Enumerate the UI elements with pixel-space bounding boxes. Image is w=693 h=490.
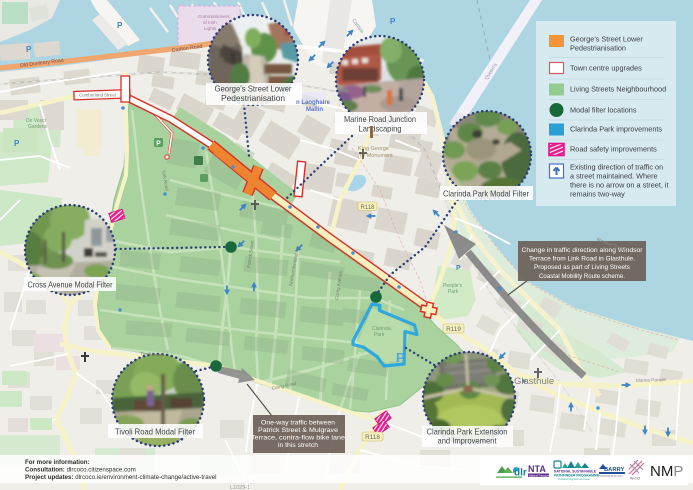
svg-text:Clarinda Park Extension: Clarinda Park Extension	[427, 428, 508, 437]
svg-text:Pedestrianisation: Pedestrianisation	[221, 94, 285, 103]
svg-text:P: P	[26, 45, 32, 54]
svg-text:there is no arrow on a street,: there is no arrow on a street, it	[570, 181, 669, 190]
svg-text:Modal filter locations: Modal filter locations	[570, 106, 637, 115]
svg-text:Landscaping: Landscaping	[359, 125, 402, 134]
svg-text:NTA: NTA	[528, 464, 546, 474]
svg-text:Project updates: dlrcoco.ie/en: Project updates: dlrcoco.ie/environment-…	[25, 474, 217, 481]
svg-text:Commissioners: Commissioners	[198, 14, 230, 19]
svg-text:Coastal Mobility Route scheme.: Coastal Mobility Route scheme.	[539, 273, 625, 280]
svg-text:P: P	[456, 265, 461, 272]
svg-text:Cross Avenue Modal Filter: Cross Avenue Modal Filter	[28, 281, 113, 290]
svg-text:Glasthule: Glasthule	[514, 376, 554, 387]
svg-text:a street maintained. Where: a street maintained. Where	[570, 172, 658, 181]
svg-text:P: P	[396, 350, 405, 365]
svg-text:Lights: Lights	[204, 26, 217, 31]
svg-text:NMP: NMP	[650, 463, 683, 480]
svg-text:remains two-way: remains two-way	[570, 190, 625, 199]
svg-text:Living Streets Neighbourhood: Living Streets Neighbourhood	[570, 85, 666, 94]
svg-text:National Transport: National Transport	[529, 474, 550, 477]
svg-text:Clarinda Park Modal Filter: Clarinda Park Modal Filter	[443, 190, 529, 199]
svg-text:in this stretch: in this stretch	[278, 442, 318, 449]
svg-text:P: P	[14, 139, 20, 148]
svg-text:George's Street Lower: George's Street Lower	[570, 35, 643, 44]
svg-text:R118: R118	[365, 434, 380, 441]
svg-text:Cumberland Street: Cumberland Street	[79, 93, 117, 98]
svg-text:Pedestrianisation: Pedestrianisation	[570, 44, 626, 53]
svg-text:Clarinda Park improvements: Clarinda Park improvements	[570, 125, 662, 134]
svg-text:Proposed as part of Living Str: Proposed as part of Living Streets	[534, 264, 631, 271]
svg-text:Park: Park	[374, 332, 385, 338]
svg-text:Patrick Street & Mulgrave: Patrick Street & Mulgrave	[258, 427, 338, 434]
svg-text:W-CO: W-CO	[630, 477, 640, 481]
svg-text:PATHFINDER PROGRAMME: PATHFINDER PROGRAMME	[554, 474, 600, 478]
svg-text:One-way traffic between: One-way traffic between	[261, 420, 335, 427]
svg-text:Tivoli Road Modal Filter: Tivoli Road Modal Filter	[115, 428, 195, 437]
svg-text:Park: Park	[448, 289, 459, 295]
svg-text:R119: R119	[446, 326, 461, 333]
svg-text:P: P	[390, 17, 396, 26]
svg-text:Terrace, contra-flow bike lane: Terrace, contra-flow bike lane	[251, 435, 345, 442]
svg-text:George's Street Lower: George's Street Lower	[215, 85, 292, 94]
svg-text:L1029-1: L1029-1	[230, 485, 250, 490]
svg-text:Gardens: Gardens	[28, 124, 48, 130]
svg-text:of Irish: of Irish	[203, 20, 217, 25]
svg-text:and Improvement: and Improvement	[438, 437, 498, 446]
svg-text:Consultation: dlrcoco.citizens: Consultation: dlrcoco.citizenspace.com	[25, 467, 136, 474]
svg-text:Existing direction of traffic: Existing direction of traffic on	[570, 163, 663, 172]
svg-text:Marine Road Junction: Marine Road Junction	[344, 115, 416, 124]
svg-text:TRANSPORTATION: TRANSPORTATION	[599, 474, 623, 478]
svg-text:Town centre upgrades: Town centre upgrades	[570, 64, 642, 73]
svg-text:Road safety improvements: Road safety improvements	[570, 145, 657, 154]
svg-text:Terrace from Link Road in Glas: Terrace from Link Road in Glasthule.	[529, 256, 635, 263]
svg-text:P: P	[117, 21, 123, 30]
svg-text:P: P	[497, 287, 502, 294]
svg-text:P: P	[156, 140, 161, 147]
svg-text:For more information:: For more information:	[25, 459, 90, 466]
svg-text:R118: R118	[361, 205, 376, 211]
svg-text:Marine Parade: Marine Parade	[636, 377, 667, 383]
svg-text:Mallin: Mallin	[306, 107, 323, 113]
svg-text:Transforming how we travel: Transforming how we travel	[558, 477, 590, 481]
svg-text:n Laoghaire: n Laoghaire	[296, 100, 331, 106]
